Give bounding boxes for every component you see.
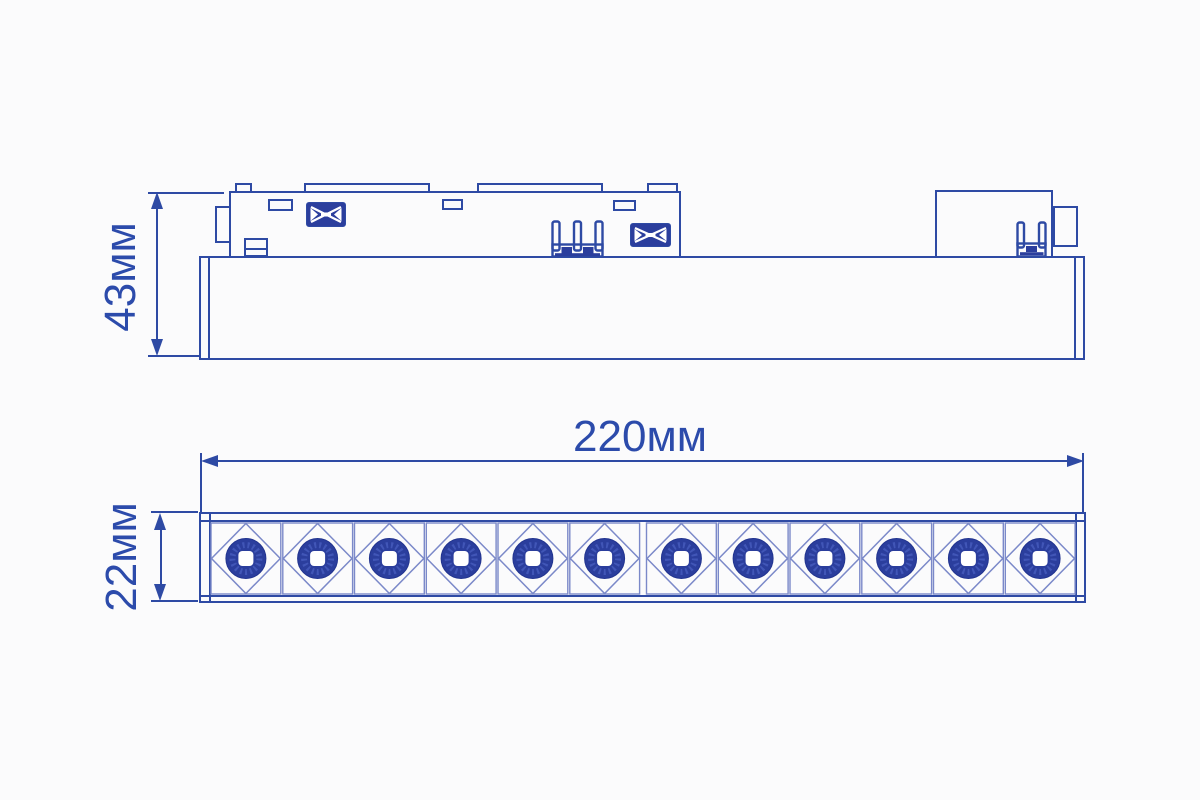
led-cell bbox=[718, 523, 788, 594]
arrow-up-icon bbox=[151, 192, 163, 209]
extension-line bbox=[200, 453, 202, 513]
led-cell bbox=[570, 523, 640, 594]
slot-hole-outline bbox=[268, 199, 293, 211]
led-cell bbox=[426, 523, 496, 594]
dimension-line bbox=[156, 207, 158, 341]
arrow-down-icon bbox=[154, 584, 166, 601]
adapter-lip bbox=[647, 183, 678, 193]
fixture-body-outline bbox=[199, 256, 1085, 360]
side-view: 43мм bbox=[0, 0, 1200, 400]
adapter-lip bbox=[304, 183, 430, 193]
terminal-block-line bbox=[246, 248, 266, 250]
side-tab-outline bbox=[215, 206, 230, 243]
slot-hole-outline bbox=[613, 200, 636, 211]
arrow-down-icon bbox=[151, 339, 163, 356]
cable-clamp-icon bbox=[630, 223, 671, 247]
spring-clip-icon bbox=[1016, 221, 1047, 258]
led-cell bbox=[934, 523, 1004, 594]
led-cell bbox=[790, 523, 860, 594]
driver-box-ear-outline bbox=[1053, 206, 1078, 247]
dimension-line bbox=[160, 529, 162, 585]
front-width-dimension-label: 220мм bbox=[530, 411, 750, 463]
technical-drawing-canvas: 43мм bbox=[0, 0, 1200, 800]
led-cell bbox=[355, 523, 425, 594]
led-cell bbox=[862, 523, 932, 594]
body-left-endcap-line bbox=[208, 258, 210, 358]
led-array bbox=[210, 521, 1076, 596]
side-height-dimension-label: 43мм bbox=[96, 207, 146, 347]
led-cell bbox=[1005, 523, 1075, 594]
adapter-lip bbox=[477, 183, 603, 193]
led-cell bbox=[211, 523, 281, 594]
dimension-line bbox=[205, 460, 1080, 462]
body-right-endcap-line bbox=[1074, 258, 1076, 358]
front-view: 220мм 22мм bbox=[0, 400, 1200, 800]
spring-clip-icon bbox=[551, 220, 604, 258]
adapter-lip bbox=[235, 183, 252, 193]
cable-clamp-icon bbox=[306, 202, 346, 227]
led-cell bbox=[283, 523, 353, 594]
front-height-dimension-label: 22мм bbox=[97, 487, 147, 627]
led-cell bbox=[647, 523, 717, 594]
slot-hole-outline bbox=[442, 199, 463, 210]
arrow-left-icon bbox=[201, 455, 218, 467]
arrow-up-icon bbox=[154, 513, 166, 530]
led-cell bbox=[498, 523, 568, 594]
extension-line bbox=[1082, 453, 1084, 513]
